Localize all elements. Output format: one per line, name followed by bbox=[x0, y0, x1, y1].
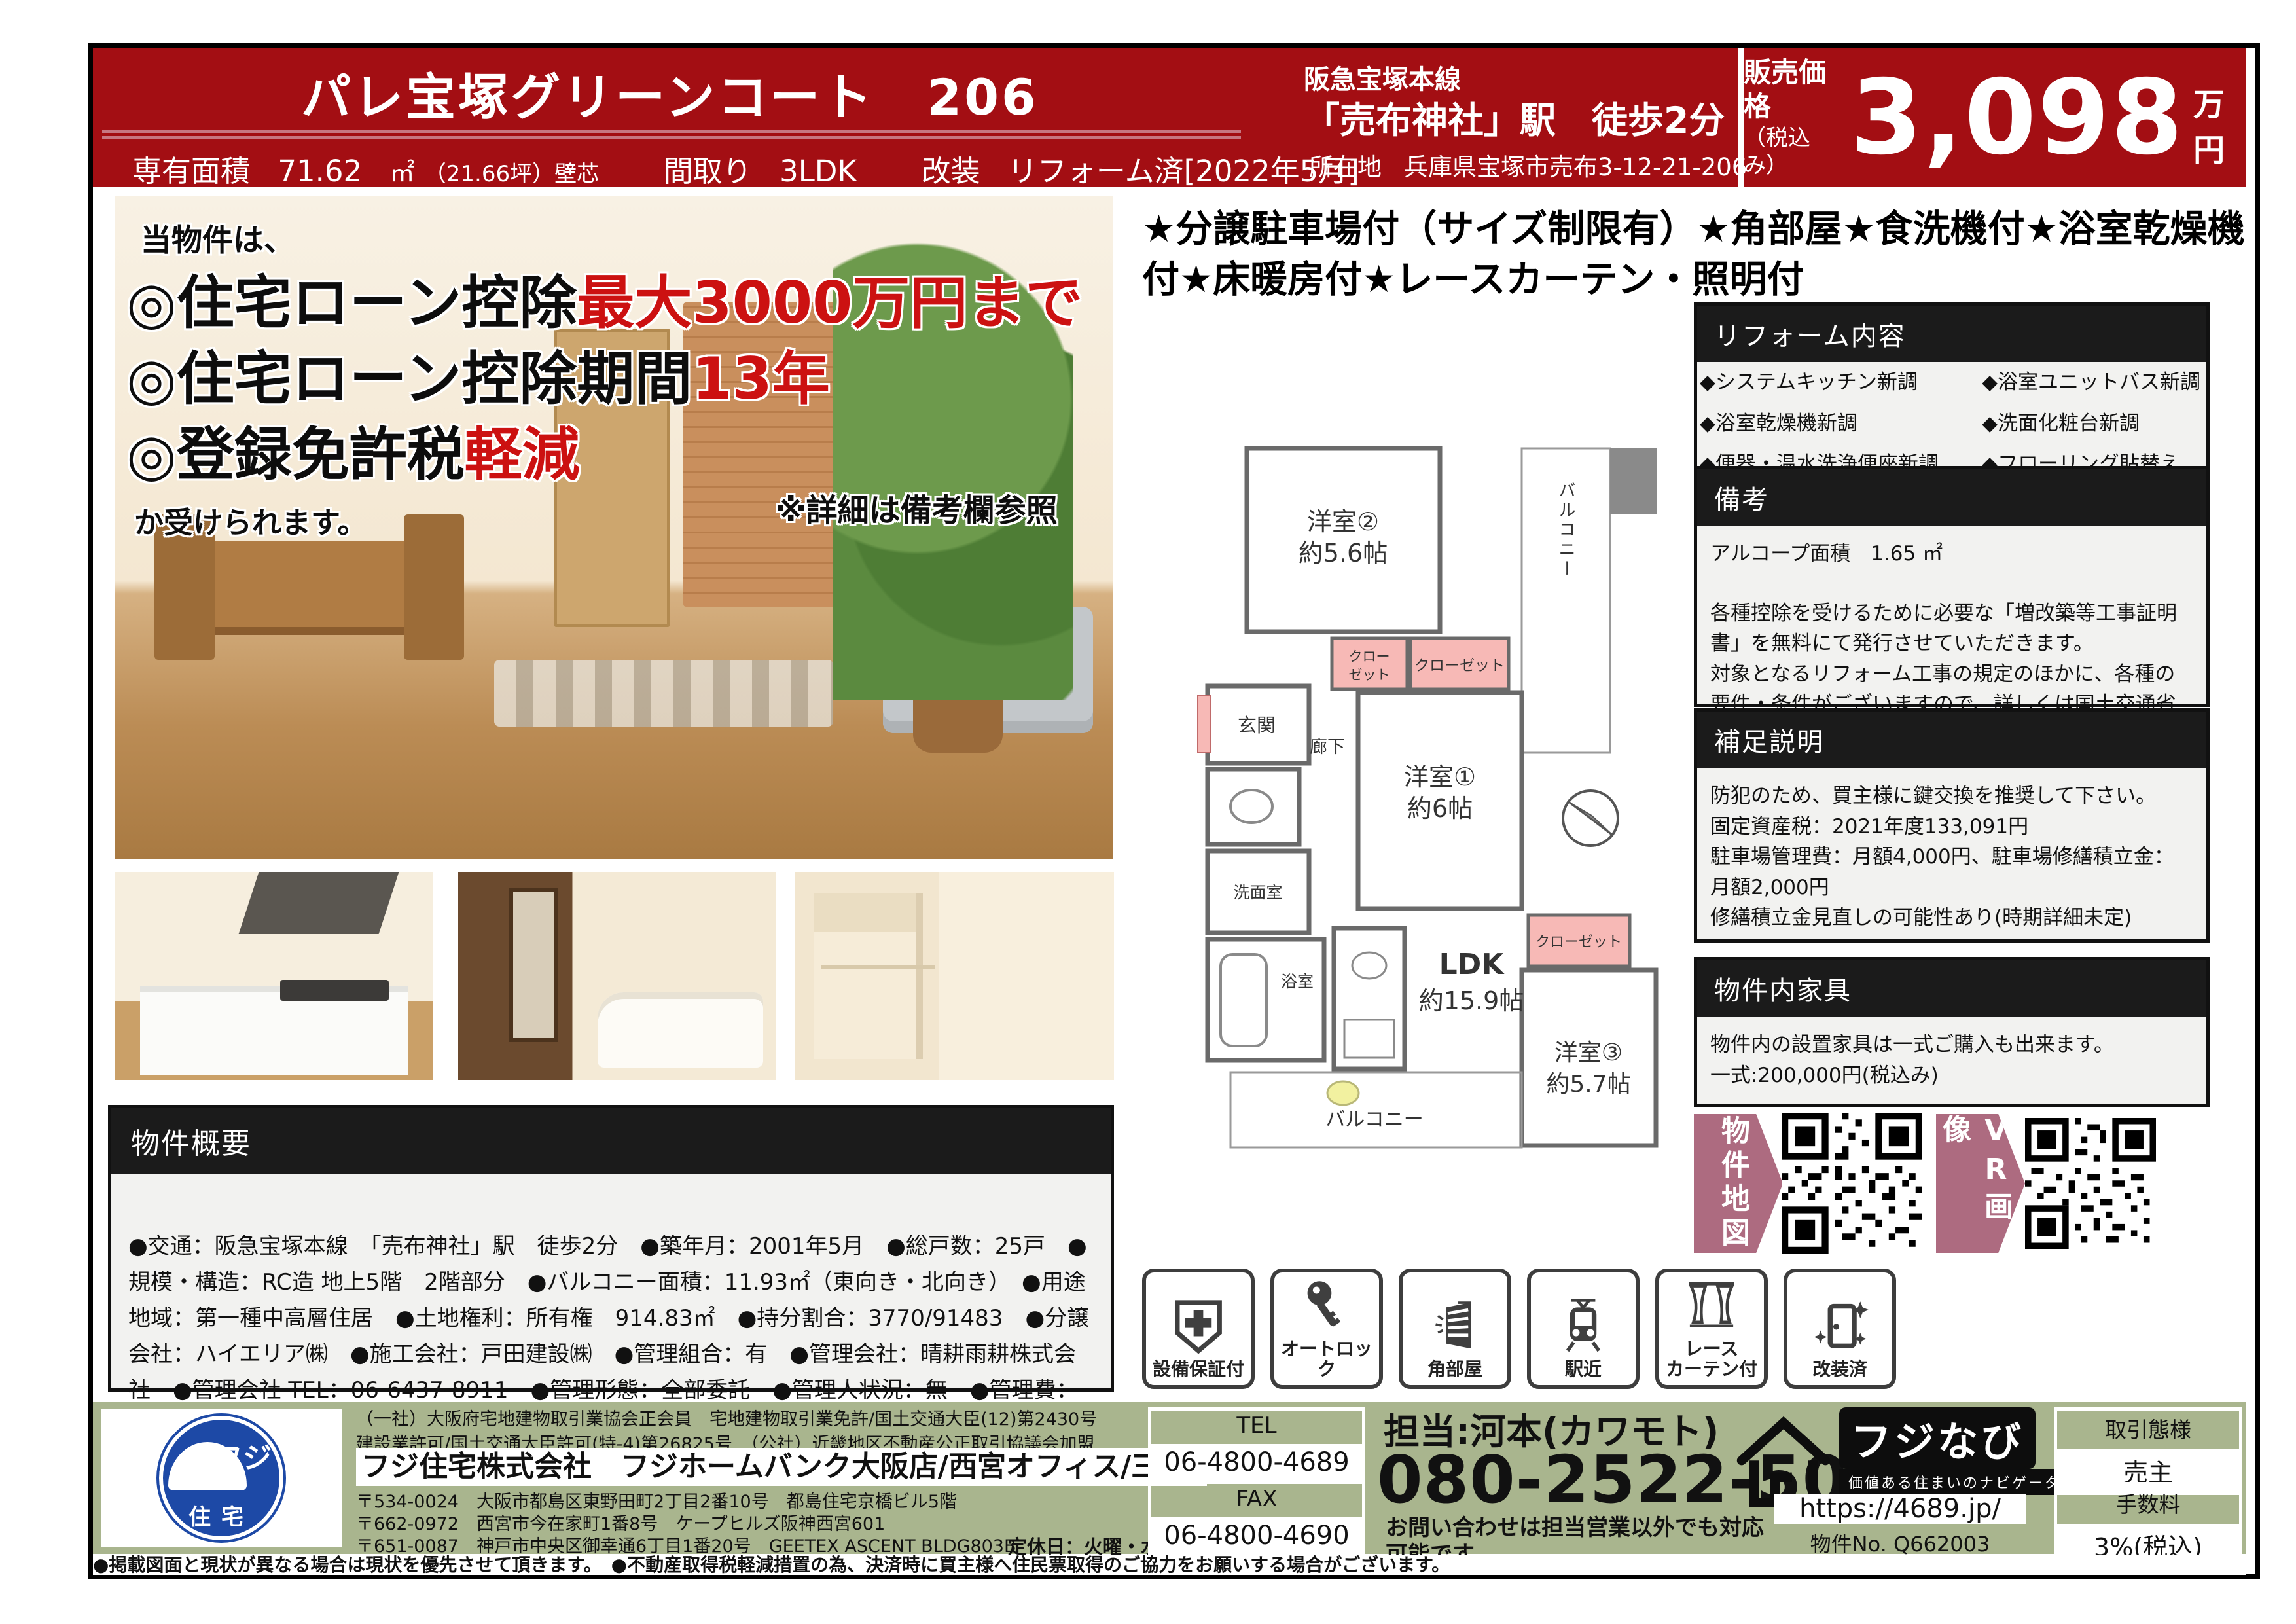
plan-washer bbox=[1327, 1081, 1359, 1105]
plan-genkan-label: 玄関 bbox=[1238, 714, 1276, 736]
feature-label: 駅近 bbox=[1565, 1360, 1602, 1380]
fee-label: 手数料 bbox=[2057, 1485, 2239, 1521]
feature-label: オートロック bbox=[1274, 1339, 1379, 1380]
feature-label: レース カーテン付 bbox=[1666, 1339, 1757, 1380]
overlay-intro: 当物件は、 bbox=[141, 215, 295, 260]
header-divider bbox=[1738, 48, 1744, 187]
kitchen-photo bbox=[115, 872, 433, 1080]
reform-item: ◆浴室乾燥機新調 bbox=[1700, 408, 1982, 439]
address-kobe: 〒651-0087 神戸市中央区御幸通6丁目1番20号 GEETEX ASCEN… bbox=[356, 1536, 1016, 1558]
area-unit: ㎡ bbox=[389, 158, 414, 187]
plan-rouka-label: 廊下 bbox=[1310, 737, 1345, 757]
area-value: 71.62 bbox=[278, 154, 362, 189]
plan-closet-small-l2: ゼット bbox=[1349, 667, 1390, 683]
vr-qr-code[interactable] bbox=[2025, 1118, 2156, 1249]
overlay-note: ※詳細は備考欄参照 bbox=[776, 484, 1058, 530]
price-value: 3,098 bbox=[1850, 66, 2184, 170]
overlay-line1: ◎住宅ローン控除最大3000万円まで bbox=[126, 257, 1083, 340]
kagu-title: 物件内家具 bbox=[1697, 960, 2206, 1017]
fujinavi-tagline: 価値ある住まいのナビゲーター bbox=[1839, 1469, 2087, 1495]
feature-tile-autolock: オートロック bbox=[1270, 1269, 1383, 1389]
reform-item: ◆システムキッチン新調 bbox=[1700, 367, 1982, 398]
hosoku-title: 補足説明 bbox=[1697, 712, 2206, 768]
company-name: フジ住宅株式会社 フジホームバンク大阪店/西宮オフィス/三宮オフィス bbox=[356, 1448, 1207, 1486]
plan-bathtub bbox=[1221, 954, 1266, 1046]
shield-plus-icon bbox=[1168, 1295, 1229, 1356]
feature-icons-row: 設備保証付 オートロック 角部屋 bbox=[1142, 1269, 1896, 1389]
hosoku-line4: 修繕積立金見直しの可能性あり(時期詳細未定) bbox=[1710, 903, 2193, 933]
bikou-section: 備考 アルコープ面積 1.65 ㎡ 各種控除を受けるために必要な「増改築等工事証… bbox=[1694, 466, 2210, 707]
overlay-line3-black: ◎登録免許税 bbox=[126, 421, 465, 488]
madori-value: 3LDK bbox=[780, 154, 857, 189]
license-line1: （一社）大阪府宅地建物取引業協会正会員 宅地建物取引業免許/国土交通大臣(12)… bbox=[356, 1407, 1097, 1432]
fax-box: FAX 06-4800-4690 bbox=[1148, 1481, 1365, 1557]
address-label: 所在地 bbox=[1309, 153, 1382, 181]
station-block: 阪急宝塚本線 「売布神社」駅 徒歩2分 所在地兵庫県宝塚市売布3-12-21-2… bbox=[1304, 48, 1736, 187]
logo-text-top: フジ bbox=[214, 1434, 272, 1476]
overlay-line1-red: 最大3000万円まで bbox=[577, 269, 1083, 336]
qr-pattern bbox=[1782, 1113, 1922, 1254]
reform-item: ◆浴室ユニットバス新調 bbox=[1982, 367, 2204, 398]
plan-senmen-label: 洗面室 bbox=[1233, 883, 1282, 902]
corner-building-icon bbox=[1425, 1295, 1485, 1356]
plan-entrance-door bbox=[1198, 695, 1211, 753]
hosoku-section: 補足説明 防犯のため、買主様に鍵交換を推奨して下さい。 固定資産税：2021年度… bbox=[1694, 708, 2210, 943]
plan-room2-label: 洋室② bbox=[1307, 507, 1379, 536]
photo-cabinet bbox=[814, 893, 923, 1059]
plan-closet3-label: クローゼット bbox=[1535, 934, 1622, 950]
price-label: 販売価格 bbox=[1744, 56, 1837, 124]
feature-tile-equipment-warranty: 設備保証付 bbox=[1142, 1269, 1255, 1389]
plan-sink bbox=[1352, 952, 1386, 979]
photo-bath-mirror bbox=[509, 888, 558, 1042]
overlay-line3-red: 軽減 bbox=[465, 421, 580, 488]
feature-label: 改装済 bbox=[1812, 1360, 1867, 1380]
address-value: 兵庫県宝塚市売布3-12-21-206 bbox=[1404, 153, 1747, 181]
plan-room3-size: 約5.7帖 bbox=[1546, 1071, 1630, 1098]
storage-photo bbox=[795, 872, 1114, 1080]
feature-label: 設備保証付 bbox=[1153, 1360, 1244, 1380]
photo-shelf bbox=[821, 965, 935, 969]
plan-ldk-label: LDK bbox=[1439, 948, 1505, 981]
kagu-section: 物件内家具 物件内の設置家具は一式ご購入も出来ます。 一式:200,000円(税… bbox=[1694, 957, 2210, 1107]
madori-label: 間取り bbox=[664, 154, 752, 189]
key-icon bbox=[1297, 1275, 1357, 1335]
hosoku-line3: 駐車場管理費：月額4,000円、駐車場修繕積立金：月額2,000円 bbox=[1710, 842, 2193, 903]
reform-section: リフォーム内容 ◆システムキッチン新調 ◆浴室ユニットバス新調 ◆浴室乾燥機新調… bbox=[1694, 302, 2210, 488]
hosoku-line1: 防犯のため、買主様に鍵交換を推奨して下さい。 bbox=[1710, 781, 2193, 812]
overlay-outro: か受けられます。 bbox=[134, 499, 367, 541]
kagu-line2: 一式:200,000円(税込み) bbox=[1710, 1060, 2193, 1091]
main-photo: 当物件は、 ◎住宅ローン控除最大3000万円まで ◎住宅ローン控除期間13年 ◎… bbox=[115, 196, 1113, 859]
train-icon bbox=[1553, 1295, 1613, 1356]
flyer-page: パレ宝塚グリーンコート 206 専有面積 71.62 ㎡ （21.66坪）壁芯 … bbox=[0, 0, 2296, 1624]
photo-gas-stove bbox=[280, 980, 389, 1001]
bottom-disclaimer: ●掲載図面と現状が異なる場合は現状を優先させて頂きます。 ●不動産取得税軽減措置… bbox=[93, 1555, 2246, 1575]
kagu-line1: 物件内の設置家具は一式ご購入も出来ます。 bbox=[1710, 1030, 2193, 1060]
property-number: 物件No. Q662003 bbox=[1774, 1528, 2026, 1558]
door-sparkle-icon bbox=[1810, 1295, 1870, 1356]
curtains-icon bbox=[1681, 1275, 1742, 1335]
fujinavi-logo: フジなび 価値ある住まいのナビゲーター bbox=[1839, 1407, 2087, 1495]
tel-label: TEL bbox=[1151, 1411, 1362, 1441]
overlay-line1-black: ◎住宅ローン控除 bbox=[126, 269, 577, 336]
plan-bath-label: 浴室 bbox=[1281, 972, 1314, 991]
header-specs: 専有面積 71.62 ㎡ （21.66坪）壁芯 間取り 3LDK 改装 リフォー… bbox=[132, 147, 1284, 190]
plan-stove bbox=[1344, 1020, 1394, 1058]
bikou-line1: アルコープ面積 1.65 ㎡ bbox=[1710, 539, 2193, 569]
kaisou-label: 改装 bbox=[922, 154, 980, 189]
plan-room1-label: 洋室① bbox=[1404, 763, 1476, 791]
overlay-line2-red: 13年 bbox=[692, 345, 829, 412]
plan-gray-block bbox=[1610, 448, 1657, 514]
plan-balcony-bottom-label: バルコニー bbox=[1325, 1108, 1423, 1131]
fax-label: FAX bbox=[1151, 1484, 1362, 1514]
fax-number: 06-4800-4690 bbox=[1151, 1514, 1362, 1554]
overlay-line3: ◎登録免許税軽減 bbox=[126, 408, 580, 492]
address-line: 所在地兵庫県宝塚市売布3-12-21-206 bbox=[1309, 147, 1747, 183]
qr-pattern bbox=[2025, 1118, 2156, 1249]
tel-number: 06-4800-4689 bbox=[1151, 1441, 1362, 1481]
bikou-para1: 各種控除を受けるために必要な「増改築等工事証明書」を無料にて発行させていただきま… bbox=[1710, 598, 2193, 659]
price-block: 販売価格 （税込み） 3,098 万円 bbox=[1744, 48, 2246, 187]
photo-bathtub bbox=[598, 992, 762, 1067]
plan-closet-small-l1: クロー bbox=[1349, 649, 1390, 664]
compass-icon bbox=[1563, 791, 1618, 846]
plan-toilet-bowl bbox=[1230, 790, 1272, 823]
fujinavi-wordmark: フジなび bbox=[1839, 1407, 2036, 1469]
plan-ldk-size: 約15.9帖 bbox=[1419, 986, 1524, 1015]
overlay-line2: ◎住宅ローン控除期間13年 bbox=[126, 333, 830, 416]
feature-tile-lace-curtain: レース カーテン付 bbox=[1655, 1269, 1768, 1389]
floor-plan: 洋室② 約5.6帖 バルコニー クロー ゼット クローゼット 玄関 廊下 洋室①… bbox=[1158, 412, 1669, 1152]
catchphrase: ★分譲駐車場付（サイズ制限有）★角部屋★食洗機付★浴室乾燥機付★床暖房付★レース… bbox=[1142, 204, 2247, 305]
area-note: （21.66坪）壁芯 bbox=[424, 161, 599, 187]
plan-closet2-label: クローゼット bbox=[1414, 657, 1505, 674]
company-logo-box: フジ 住宅 bbox=[101, 1409, 342, 1547]
address-osaka: 〒534-0024 大阪市都島区東野田町2丁目2番10号 都島住宅京橋ビル5階 bbox=[356, 1491, 1016, 1513]
photo-chair bbox=[404, 514, 464, 660]
tel-box: TEL 06-4800-4689 bbox=[1148, 1407, 1365, 1484]
photo-dining-table bbox=[185, 541, 424, 627]
map-qr-code[interactable] bbox=[1782, 1113, 1922, 1254]
reform-item: ◆洗面化粧台新調 bbox=[1982, 408, 2204, 439]
bathroom-photo bbox=[458, 872, 776, 1080]
deal-type-label: 取引態様 bbox=[2057, 1411, 2239, 1446]
office-addresses: 〒534-0024 大阪市都島区東野田町2丁目2番10号 都島住宅京橋ビル5階 … bbox=[356, 1491, 1016, 1558]
plan-room2-size: 約5.6帖 bbox=[1299, 539, 1388, 568]
price-unit: 万円 bbox=[2193, 79, 2246, 170]
hosoku-line2: 固定資産税：2021年度133,091円 bbox=[1710, 812, 2193, 842]
overview-section: 物件概要 ●交通：阪急宝塚本線 「売布神社」駅 徒歩2分 ●築年月：2001年5… bbox=[108, 1105, 1114, 1392]
photo-range-hood bbox=[238, 872, 399, 934]
address-nishinomiya: 〒662-0972 西宮市今在家町1番8号 ケープヒルズ阪神西宮601 bbox=[356, 1513, 1016, 1536]
logo-text-bottom: 住宅 bbox=[159, 1499, 283, 1531]
plan-room3-label: 洋室③ bbox=[1554, 1039, 1623, 1066]
fuji-logo-icon: フジ 住宅 bbox=[156, 1413, 286, 1543]
header-band: パレ宝塚グリーンコート 206 専有面積 71.62 ㎡ （21.66坪）壁芯 … bbox=[93, 48, 2246, 187]
overlay-line2-black: ◎住宅ローン控除期間 bbox=[126, 345, 692, 412]
plan-balcony-top-label: バルコニー bbox=[1556, 481, 1575, 579]
bikou-title: 備考 bbox=[1697, 469, 2206, 526]
feature-label: 角部屋 bbox=[1427, 1360, 1482, 1380]
feature-tile-near-station: 駅近 bbox=[1527, 1269, 1640, 1389]
photo-rug bbox=[494, 660, 834, 726]
header-separator bbox=[102, 130, 1241, 133]
page-title: パレ宝塚グリーンコート 206 bbox=[93, 57, 1247, 129]
feature-tile-renovated: 改装済 bbox=[1784, 1269, 1896, 1389]
station-walk: 「売布神社」駅 徒歩2分 bbox=[1304, 91, 1725, 143]
feature-tile-corner-room: 角部屋 bbox=[1399, 1269, 1511, 1389]
reform-title: リフォーム内容 bbox=[1697, 306, 2206, 362]
footer-band: フジ 住宅 （一社）大阪府宅地建物取引業協会正会員 宅地建物取引業免許/国土交通… bbox=[93, 1402, 2246, 1554]
website-url[interactable]: https://4689.jp/ bbox=[1774, 1494, 2026, 1524]
area-label: 専有面積 bbox=[132, 154, 250, 189]
price-tax-note: （税込み） bbox=[1744, 124, 1837, 180]
plan-room1-size: 約6帖 bbox=[1407, 794, 1473, 823]
overview-title: 物件概要 bbox=[111, 1108, 1111, 1174]
